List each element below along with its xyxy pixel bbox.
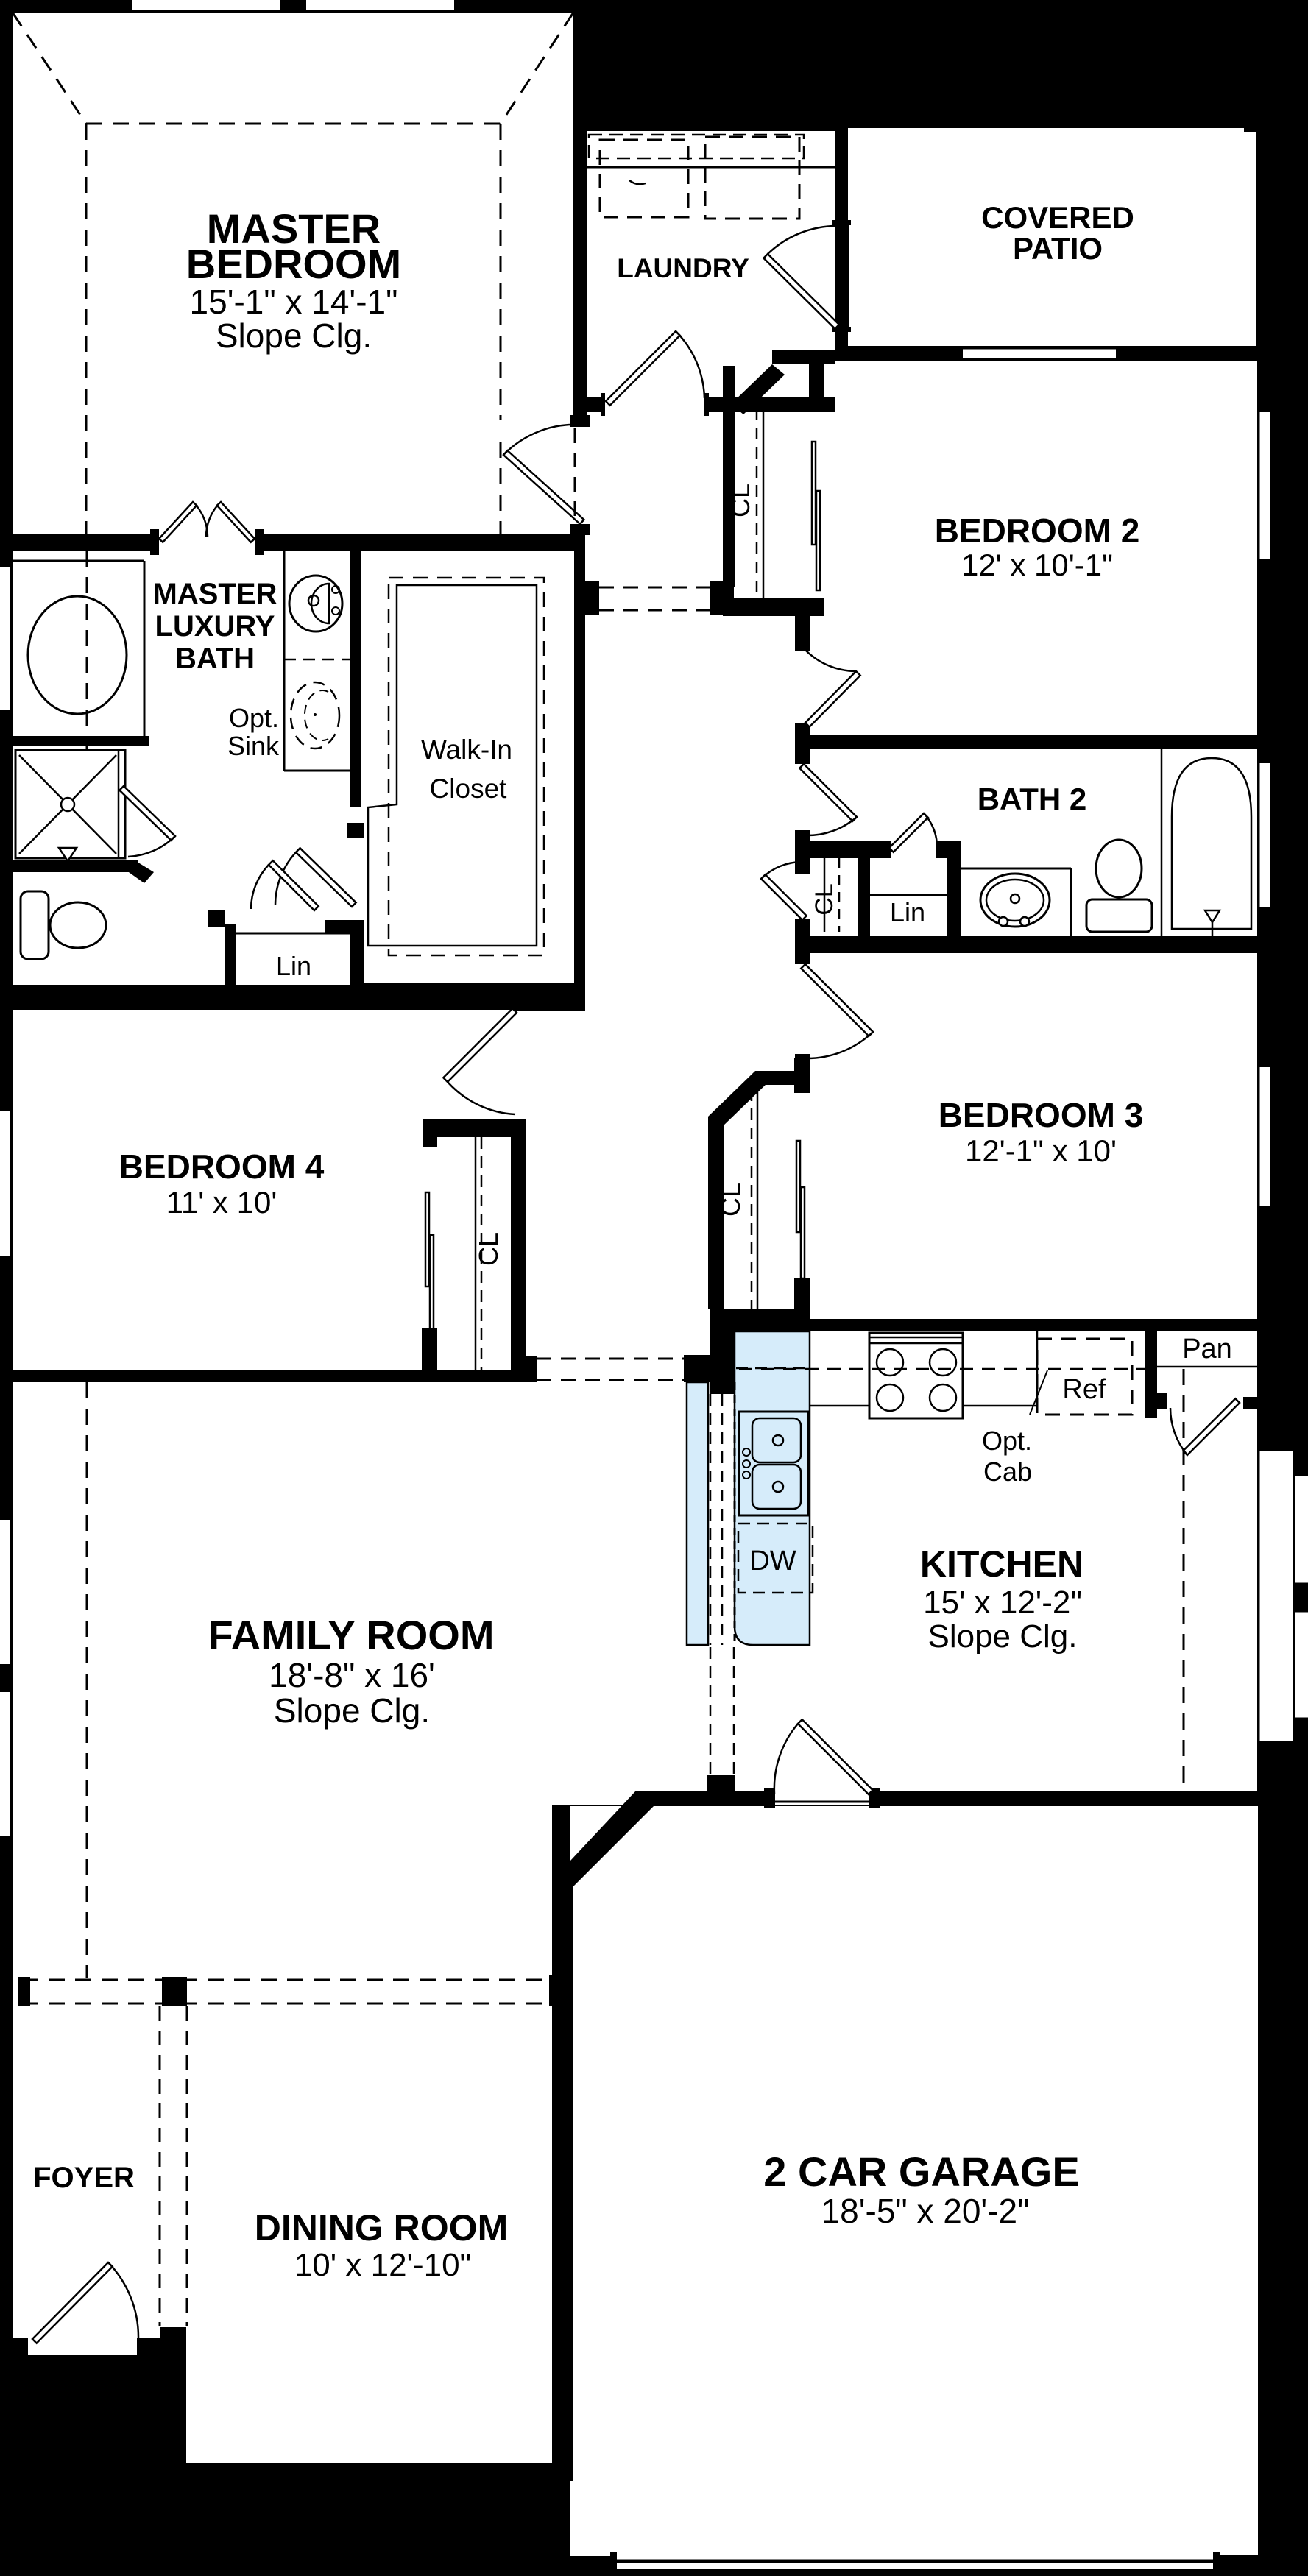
svg-text:CL: CL <box>725 484 755 517</box>
svg-text:CL: CL <box>715 1183 746 1217</box>
svg-text:11' x 10': 11' x 10' <box>166 1185 277 1220</box>
svg-text:DINING ROOM: DINING ROOM <box>255 2207 508 2248</box>
svg-text:BEDROOM 2: BEDROOM 2 <box>935 512 1140 550</box>
svg-text:15'-1" x 14'-1": 15'-1" x 14'-1" <box>190 283 398 321</box>
svg-text:FAMILY ROOM: FAMILY ROOM <box>208 1612 495 1658</box>
svg-text:CL: CL <box>473 1232 503 1266</box>
svg-text:18'-5" x 20'-2": 18'-5" x 20'-2" <box>821 2192 1030 2230</box>
svg-text:2 CAR GARAGE: 2 CAR GARAGE <box>763 2148 1079 2195</box>
svg-text:Opt.: Opt. <box>982 1426 1032 1456</box>
svg-text:Sink: Sink <box>227 731 280 761</box>
svg-text:LUXURY: LUXURY <box>155 610 275 643</box>
svg-text:Pan: Pan <box>1182 1334 1232 1365</box>
svg-text:Ref: Ref <box>1062 1374 1106 1405</box>
svg-text:BATH 2: BATH 2 <box>978 782 1087 816</box>
svg-text:Closet: Closet <box>430 774 508 804</box>
svg-text:BEDROOM: BEDROOM <box>186 241 401 287</box>
svg-text:12' x 10'-1": 12' x 10'-1" <box>961 548 1113 582</box>
svg-text:Walk-In: Walk-In <box>421 735 512 765</box>
svg-text:18'-8" x 16': 18'-8" x 16' <box>269 1656 435 1694</box>
svg-text:LAUNDRY: LAUNDRY <box>617 253 749 283</box>
svg-text:15' x 12'-2": 15' x 12'-2" <box>923 1585 1082 1621</box>
svg-text:Opt.: Opt. <box>229 703 279 733</box>
svg-text:BEDROOM 3: BEDROOM 3 <box>938 1096 1144 1134</box>
svg-text:Slope Clg.: Slope Clg. <box>927 1618 1077 1655</box>
svg-text:MASTER: MASTER <box>153 578 277 610</box>
svg-text:Lin: Lin <box>890 897 925 927</box>
svg-text:DW: DW <box>749 1546 796 1577</box>
svg-text:Slope Clg.: Slope Clg. <box>216 316 372 355</box>
svg-text:Lin: Lin <box>276 951 311 981</box>
svg-text:BEDROOM 4: BEDROOM 4 <box>119 1147 325 1186</box>
svg-text:KITCHEN: KITCHEN <box>920 1543 1083 1585</box>
svg-text:10' x 12'-10": 10' x 12'-10" <box>294 2247 471 2283</box>
svg-text:Cab: Cab <box>983 1457 1032 1487</box>
svg-text:12'-1" x 10': 12'-1" x 10' <box>965 1133 1117 1168</box>
svg-text:COVERED: COVERED <box>981 200 1134 235</box>
svg-text:PATIO: PATIO <box>1013 231 1103 266</box>
svg-text:FOYER: FOYER <box>33 2162 135 2194</box>
svg-text:Slope Clg.: Slope Clg. <box>274 1691 430 1730</box>
svg-text:CL: CL <box>810 883 838 915</box>
svg-text:BATH: BATH <box>175 643 255 675</box>
